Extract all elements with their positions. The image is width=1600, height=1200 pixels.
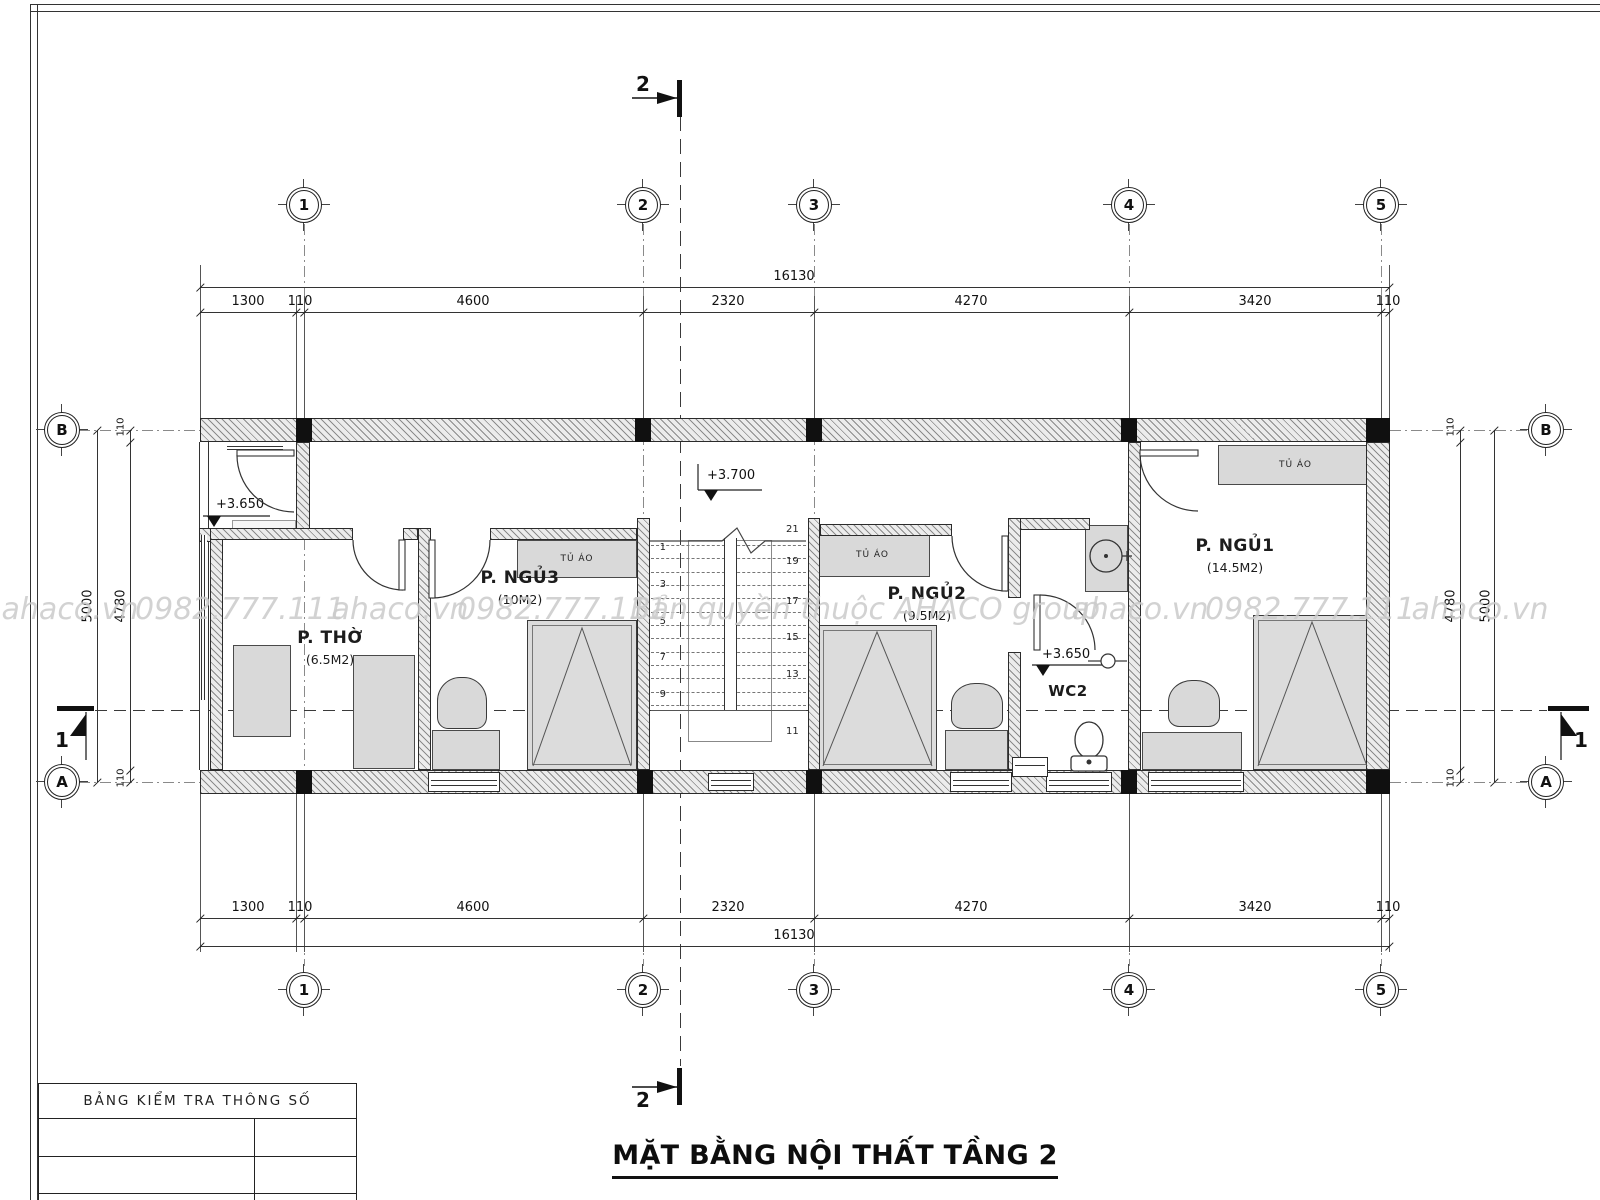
cabinet-tho (233, 645, 291, 737)
sheet-frame-top (30, 4, 1600, 12)
window-bottom-wc (1046, 772, 1112, 792)
door-arc-ngu2 (952, 536, 1007, 591)
stair-step-number: 13 (786, 669, 799, 680)
grid-bubble-2: 2 (625, 972, 661, 1008)
column (1121, 418, 1137, 442)
dim-mark (643, 794, 644, 952)
stair-step-number: 7 (652, 652, 666, 663)
grid-bubble-A: A (1528, 764, 1564, 800)
column (296, 770, 312, 794)
watermark: Bản quyền thuộc AHACO group (630, 592, 1100, 627)
room-label-ngu3: P. NGỦ3 (480, 568, 559, 588)
wall-ngu3-stair (637, 518, 650, 770)
wall-tho-top (210, 528, 353, 540)
room-area-ngu1: (14.5M2) (1207, 560, 1263, 575)
grid-bubble-A: A (44, 764, 80, 800)
dim-seg: 1300 (231, 900, 264, 915)
stair-step-number: 19 (786, 556, 799, 567)
wall-tho-ngu3-divider (418, 528, 431, 770)
bed-ngu1 (1253, 615, 1372, 770)
floor-plan-sheet: 16130 1300 110 4600 2320 4270 3420 110 1… (0, 0, 1600, 1200)
dim-side-wall: 110 (1446, 392, 1457, 462)
column (637, 770, 653, 794)
dim-line-overall-bottom (200, 946, 1389, 947)
parameter-table-header: BẢNG KIỂM TRA THÔNG SỐ (39, 1084, 356, 1119)
dim-mark (304, 296, 305, 418)
level-hall: +3.700 (707, 468, 755, 483)
dim-seg: 110 (1376, 900, 1401, 915)
wall-exterior-top (200, 418, 1390, 442)
column (635, 418, 651, 442)
wall-ngu3-top (490, 528, 637, 540)
parameter-table: BẢNG KIỂM TRA THÔNG SỐ (38, 1083, 357, 1200)
column (1366, 418, 1390, 442)
section-2-label-top: 2 (636, 72, 650, 96)
dim-mark (643, 296, 644, 418)
door-leaf-ngu1 (1140, 450, 1198, 456)
wall-balcony-right (296, 442, 310, 530)
window-bottom-ngu1 (1148, 772, 1244, 792)
level-wc: +3.650 (1042, 647, 1090, 662)
level-balcony: +3.650 (216, 497, 264, 512)
desk-ngu3 (432, 730, 500, 770)
wardrobe-ngu2-label: TỦ ÁO (815, 533, 930, 577)
room-label-wc2: WC2 (1048, 682, 1088, 700)
dim-seg: 4270 (954, 294, 987, 309)
drawing-title: MẶT BẰNG NỘI THẤT TẦNG 2 (600, 1140, 1070, 1171)
dim-overall-bottom: 16130 (773, 928, 814, 943)
dim-mark (1129, 794, 1130, 952)
wall-ngu2-wc-lower (1008, 652, 1021, 770)
dim-seg: 4270 (954, 900, 987, 915)
dim-side-wall: 110 (116, 743, 127, 813)
wall-stair-ngu2 (808, 518, 820, 770)
stair-landing-edge (651, 710, 806, 711)
table-row (39, 1118, 356, 1157)
window-bottom-stair (708, 773, 754, 791)
stair-step-number: 15 (786, 632, 799, 643)
grid-bubble-2: 2 (625, 187, 661, 223)
dim-mark (1389, 794, 1390, 952)
dim-seg: 1300 (231, 294, 264, 309)
wall-tho-left (210, 528, 223, 770)
table-column-divider (254, 1118, 255, 1200)
watermark: ahaco.vn (1072, 592, 1209, 627)
dim-seg: 3420 (1238, 900, 1271, 915)
stair-step-number: 21 (786, 524, 799, 535)
dim-side-wall: 110 (116, 392, 127, 462)
watermark: 0982.777.111 (1205, 592, 1415, 627)
stair-step-number: 9 (652, 689, 666, 700)
dim-seg: 2320 (711, 900, 744, 915)
dim-line-overall-top (200, 287, 1389, 288)
door-leaf-tho (399, 540, 405, 590)
level-symbol-wc (1032, 665, 1106, 676)
grid-bubble-4: 4 (1111, 972, 1147, 1008)
dim-seg: 4600 (456, 294, 489, 309)
watermark: ahaco.vn (1412, 592, 1549, 627)
table-row (39, 1156, 356, 1194)
grid-bubble-3: 3 (796, 187, 832, 223)
dim-line-segments-bottom (200, 918, 1389, 919)
dim-mark (1381, 296, 1382, 418)
wall-ngu2-wc-upper (1008, 518, 1021, 598)
dim-side-wall: 110 (1446, 743, 1457, 813)
column (806, 770, 822, 794)
section-1-label-left: 1 (55, 728, 69, 752)
window-bottom-ngu3 (428, 772, 500, 792)
column (806, 418, 822, 442)
dim-seg: 110 (288, 900, 313, 915)
dim-seg: 110 (288, 294, 313, 309)
bed-ngu2 (818, 625, 937, 770)
grid-bubble-1: 1 (286, 187, 322, 223)
window-balcony-glazing (227, 446, 283, 452)
room-label-ngu1: P. NGỦ1 (1195, 536, 1274, 556)
chair-ngu3 (437, 677, 487, 729)
grid-bubble-5: 5 (1363, 972, 1399, 1008)
dim-mark (1129, 296, 1130, 418)
chair-ngu1 (1168, 680, 1220, 727)
dim-seg: 110 (1376, 294, 1401, 309)
room-label-tho: P. THỜ (297, 628, 362, 648)
section-2-label-bottom: 2 (636, 1088, 650, 1112)
altar-table-tho (353, 655, 415, 769)
wardrobe-ngu1-label: TỦ ÁO (1218, 445, 1373, 485)
wall-tho-top-stub (403, 528, 418, 540)
dim-mark (814, 296, 815, 418)
section-2-cut-line (680, 116, 681, 1066)
watermark: 0982.777.111 (135, 592, 345, 627)
stair-step-number: 11 (786, 726, 799, 737)
grid-bubble-B: B (44, 412, 80, 448)
column (296, 418, 312, 442)
dim-line-segments-top (200, 312, 1389, 313)
column (1366, 770, 1390, 794)
grid-bubble-B: B (1528, 412, 1564, 448)
window-bottom-ngu2 (950, 772, 1012, 792)
room-area-tho: (6.5M2) (306, 652, 354, 667)
wc-threshold (1012, 757, 1048, 777)
dim-mark (304, 794, 305, 952)
sink-cabinet-wc (1085, 525, 1128, 592)
stair-step-number: 1 (652, 542, 666, 553)
dim-mark (200, 794, 201, 952)
desk-ngu1 (1142, 732, 1242, 770)
watermark: ahaco.vn (2, 592, 139, 627)
door-arc-tho (353, 540, 403, 590)
grid-bubble-3: 3 (796, 972, 832, 1008)
grid-bubble-4: 4 (1111, 187, 1147, 223)
grid-bubble-5: 5 (1363, 187, 1399, 223)
chair-ngu2 (951, 683, 1003, 729)
toilet-wc (1071, 722, 1107, 771)
column (1121, 770, 1137, 794)
shower-mixer-wc (1088, 654, 1127, 668)
dim-mark (296, 296, 297, 418)
stair-step-number: 3 (652, 579, 666, 590)
wall-wc-top (1020, 518, 1090, 530)
dim-seg: 3420 (1238, 294, 1271, 309)
dim-seg: 4600 (456, 900, 489, 915)
dim-mark (1381, 794, 1382, 952)
section-1-label-right: 1 (1574, 728, 1588, 752)
bed-ngu3 (527, 620, 637, 770)
door-arc-ngu1 (1140, 453, 1198, 511)
wall-ngu2-top (820, 524, 952, 536)
dim-overall-top: 16130 (773, 269, 814, 284)
grid-bubble-1: 1 (286, 972, 322, 1008)
desk-ngu2 (945, 730, 1008, 770)
dim-mark (296, 794, 297, 952)
dim-seg: 2320 (711, 294, 744, 309)
watermark: ahaco.vn (332, 592, 469, 627)
